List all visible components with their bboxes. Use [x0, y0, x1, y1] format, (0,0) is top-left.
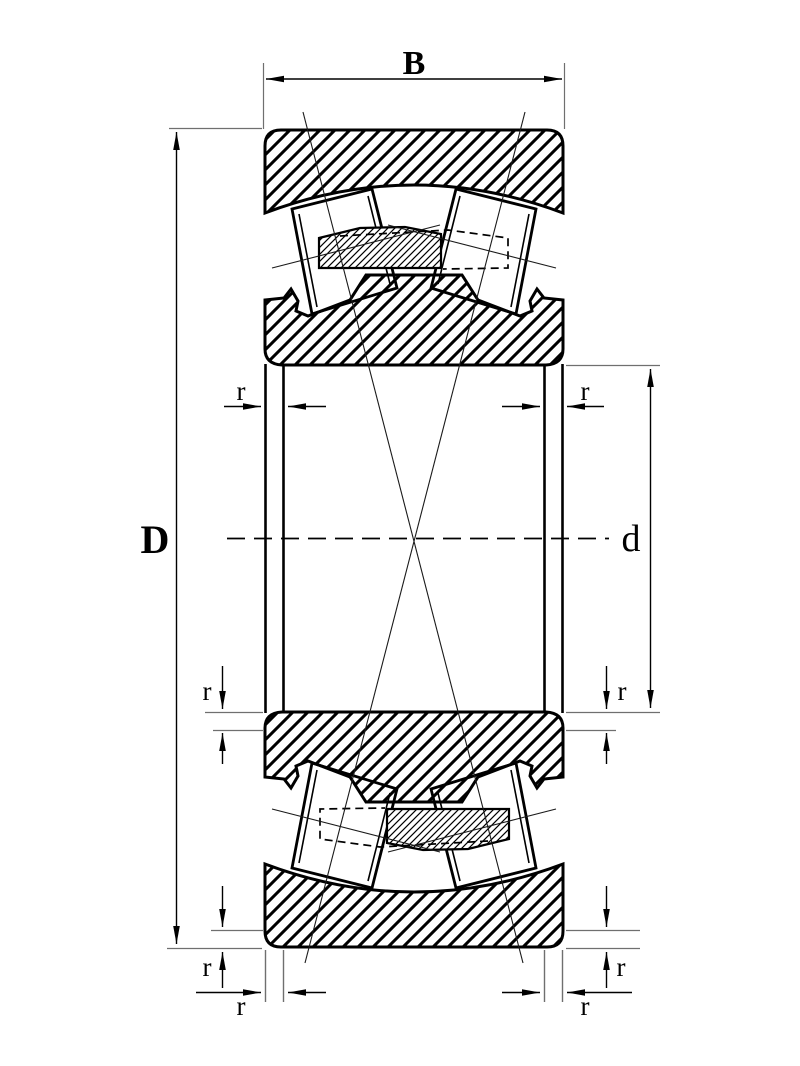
dim-label-chamfer: r — [617, 952, 626, 982]
dimension-r-bottom-right: r — [566, 886, 640, 988]
dim-label-bore-diameter: d — [622, 518, 641, 560]
bearing-drawing-page: B D d r r r r — [0, 0, 800, 1066]
dimension-r-bottom-right-h: r — [502, 991, 632, 1021]
upper-half-section — [265, 130, 563, 365]
dim-label-width: B — [403, 45, 426, 82]
dimension-r-top-right: r — [502, 376, 604, 407]
dimension-B: B — [264, 45, 565, 129]
dim-label-chamfer: r — [618, 676, 627, 706]
dim-label-chamfer: r — [203, 676, 212, 706]
dimension-r-bottom-left-h: r — [196, 991, 326, 1021]
dimension-r-top-left: r — [224, 376, 326, 407]
bearing-cross-section: B D d r r r r — [0, 0, 800, 1066]
dim-label-chamfer: r — [581, 376, 590, 406]
dim-label-chamfer: r — [237, 991, 246, 1021]
dim-label-outer-diameter: D — [141, 517, 170, 562]
dim-label-chamfer: r — [203, 952, 212, 982]
lower-half-section — [265, 712, 563, 947]
dimension-r-mid-right: r — [566, 666, 627, 764]
dim-label-chamfer: r — [581, 991, 590, 1021]
dim-label-chamfer: r — [237, 376, 246, 406]
dimension-r-mid-left: r — [203, 666, 264, 764]
dimension-r-bottom-left: r — [203, 886, 264, 988]
